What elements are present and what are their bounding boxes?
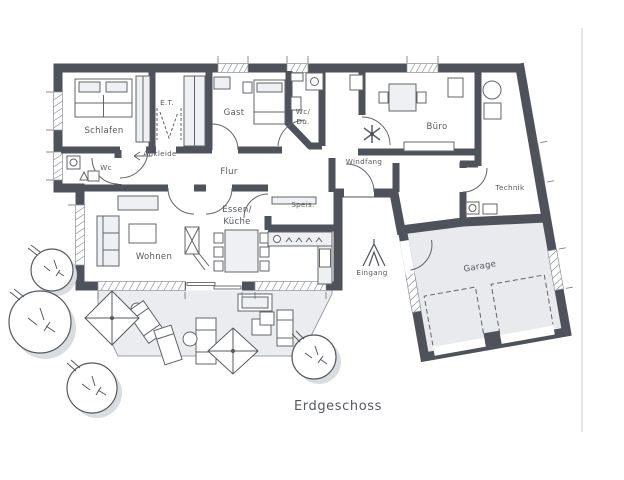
round-table xyxy=(183,332,197,346)
sink xyxy=(67,156,80,169)
sofa xyxy=(97,216,119,266)
tank xyxy=(484,103,501,119)
chair xyxy=(417,92,426,103)
room-label-et: E.T. xyxy=(160,98,174,107)
room-label-gast: Gast xyxy=(224,108,245,118)
sideboard xyxy=(118,196,158,210)
sliding-door xyxy=(186,282,242,291)
room-label-essen-1: Essen/ xyxy=(222,205,252,215)
lounger xyxy=(277,310,293,346)
entrance-marker xyxy=(363,239,385,266)
lounger xyxy=(196,318,216,364)
room-label-ankleide: Ankleide xyxy=(143,149,177,158)
pillow xyxy=(79,82,100,92)
chair xyxy=(214,261,223,271)
floor-plan-page: Garage xyxy=(0,0,624,480)
floor-plan-svg: Garage xyxy=(0,0,624,480)
room-label-essen-2: Küche xyxy=(223,217,250,227)
cabinet xyxy=(350,75,363,90)
chair xyxy=(379,92,388,103)
fridge xyxy=(320,249,331,267)
side-table xyxy=(243,82,252,93)
seat xyxy=(260,312,274,325)
room-label-buero: Büro xyxy=(427,122,448,132)
toilet xyxy=(88,171,99,181)
room-label-wcdu-2: Du. xyxy=(296,117,309,126)
shower xyxy=(306,73,323,90)
desk xyxy=(389,84,416,111)
room-label-wc: Wc xyxy=(100,163,112,172)
chair xyxy=(214,233,223,243)
pillow xyxy=(106,82,127,92)
plan-title: Erdgeschoss xyxy=(294,399,382,414)
room-label-technik: Technik xyxy=(495,183,525,192)
kitchen-sink xyxy=(274,236,281,243)
front-door-gap xyxy=(344,188,374,197)
tree xyxy=(28,245,77,296)
shelf xyxy=(448,78,463,97)
tree xyxy=(9,289,76,359)
sink xyxy=(291,73,303,81)
coffee-table xyxy=(129,224,156,243)
chair xyxy=(260,247,269,257)
dining-table xyxy=(225,230,258,272)
sideboard xyxy=(404,142,454,151)
room-label-eingang: Eingang xyxy=(356,268,387,277)
tree xyxy=(67,360,122,418)
pillow xyxy=(257,83,282,92)
room-label-schlafen: Schlafen xyxy=(84,126,123,136)
dresser xyxy=(214,77,230,89)
washer xyxy=(466,202,479,214)
garage-door-post xyxy=(484,331,502,347)
dryer xyxy=(483,204,497,214)
chair xyxy=(260,261,269,271)
room-label-windfang: Windfang xyxy=(346,157,383,166)
room-label-flur: Flur xyxy=(220,167,238,177)
chair xyxy=(214,247,223,257)
room-label-wohnen: Wohnen xyxy=(136,252,172,262)
room-label-speis: Speis. xyxy=(291,200,314,209)
boiler xyxy=(483,81,501,99)
room-label-wcdu-1: Wc/ xyxy=(296,107,311,116)
